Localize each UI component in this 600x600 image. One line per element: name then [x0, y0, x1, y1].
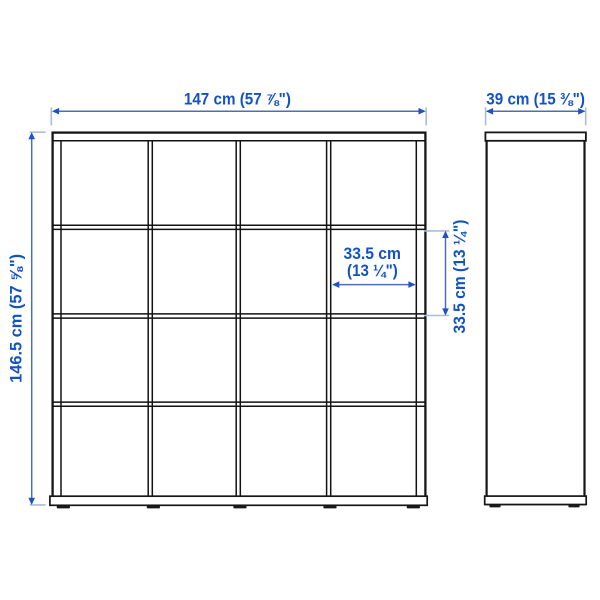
svg-text:33.5 cm (13 ¼"): 33.5 cm (13 ¼"): [451, 220, 469, 334]
svg-text:39 cm (15 ⅜"): 39 cm (15 ⅜"): [486, 91, 585, 109]
svg-text:146.5 cm (57 ⅝"): 146.5 cm (57 ⅝"): [8, 254, 26, 383]
svg-text:33.5 cm: 33.5 cm: [344, 245, 401, 263]
svg-text:(13 ¼"): (13 ¼"): [347, 262, 398, 280]
svg-text:147 cm (57 ⅞"): 147 cm (57 ⅞"): [184, 91, 291, 109]
